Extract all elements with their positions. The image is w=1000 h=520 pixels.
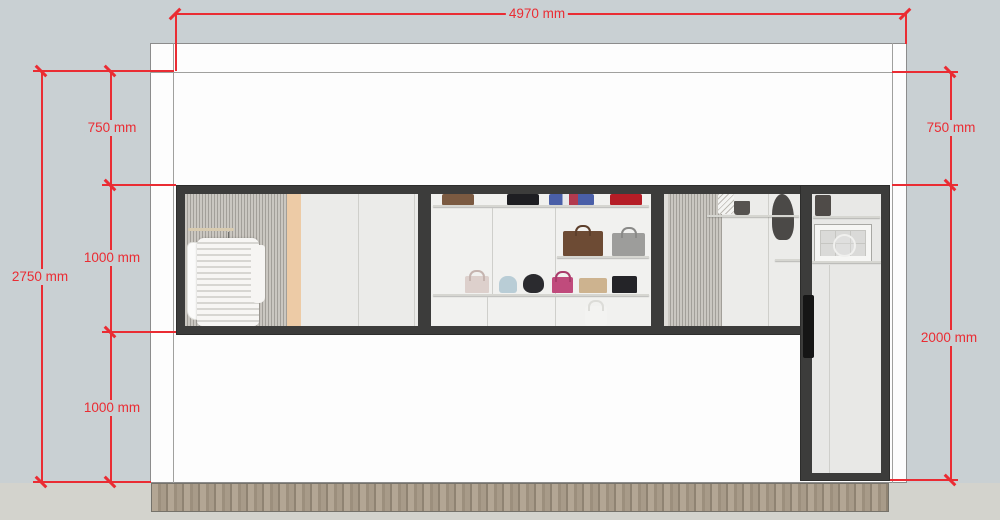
planter <box>734 201 750 215</box>
emblem-circle <box>833 234 856 257</box>
elevation-drawing: 4970 mm 2750 mm 750 mm 1000 mm 1000 mm 7… <box>0 0 1000 520</box>
wall-left-return-line <box>173 43 174 483</box>
extension-line <box>175 13 177 71</box>
panel-seam <box>768 194 769 326</box>
baseboard <box>151 483 889 512</box>
handbag-multicolor <box>549 194 594 205</box>
zigzag-vase <box>718 194 734 214</box>
hanging-striped-shirt <box>197 238 259 326</box>
cabinet-seam <box>414 194 415 326</box>
extension-line <box>33 481 151 483</box>
wall-shelf <box>813 216 880 218</box>
shirt-sleeve <box>251 245 265 303</box>
bag-handle <box>469 270 485 281</box>
dim-label-bottom-wall: 1000 mm <box>81 400 143 416</box>
handbag-small-blue <box>499 276 517 293</box>
display-shelf <box>433 205 649 207</box>
handbag-round-black <box>523 274 544 293</box>
panel-seam <box>487 297 488 326</box>
wall-right-return-line <box>892 43 893 483</box>
panel-seam <box>555 297 556 326</box>
dim-label-window-height: 1000 mm <box>81 250 143 266</box>
dim-label-top-width: 4970 mm <box>506 6 568 22</box>
wall-shelf <box>707 215 799 217</box>
window-section-shelving <box>431 194 651 326</box>
handbag-beige-box <box>579 278 607 293</box>
wall-top-band-line <box>150 72 907 73</box>
handbag-brown <box>442 194 474 205</box>
bag-handle <box>575 225 591 236</box>
bag-handle <box>588 300 604 311</box>
extension-line <box>905 13 907 44</box>
wood-accent-strip <box>287 194 301 326</box>
wall-shelf-lower <box>812 261 881 263</box>
picture-artwork <box>820 230 866 256</box>
display-shelf <box>557 256 649 258</box>
door-handle <box>803 295 814 358</box>
handbag-black-box <box>612 276 637 293</box>
handbag-satchel <box>563 231 603 256</box>
slat-wall-panel <box>668 194 722 326</box>
clothes-rail <box>188 228 234 231</box>
dim-label-door-height: 2000 mm <box>918 330 980 346</box>
dim-label-left-top: 750 mm <box>85 120 140 136</box>
handbag-gray-tote <box>612 233 645 256</box>
extension-line <box>33 70 174 72</box>
window-section-clothing <box>185 194 418 326</box>
handbag-small-white <box>465 276 489 293</box>
decor-objects <box>815 195 831 216</box>
window-section-decor <box>664 194 801 326</box>
glass-seam <box>829 265 830 473</box>
handbag-small-pink <box>552 277 573 293</box>
cabinet-panels <box>301 194 418 326</box>
display-shelf <box>433 294 649 296</box>
picture-frame <box>814 224 872 262</box>
bag-handle <box>555 271 571 282</box>
door-glass <box>812 194 881 473</box>
handbag-black <box>507 194 539 205</box>
handbag-red <box>610 194 642 205</box>
dim-label-total-height: 2750 mm <box>9 269 71 285</box>
dim-label-right-top: 750 mm <box>924 120 979 136</box>
wall-shelf-lower <box>775 259 801 261</box>
bag-handle <box>621 227 637 238</box>
cabinet-seam <box>358 194 359 326</box>
handbag-partial-white <box>585 306 607 326</box>
panel-seam <box>492 208 493 294</box>
